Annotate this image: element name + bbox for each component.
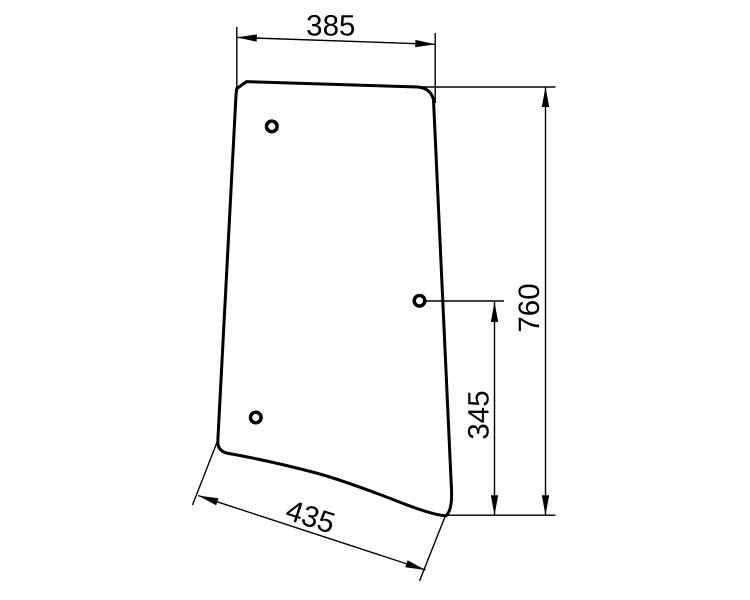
svg-text:345: 345 xyxy=(462,390,495,439)
svg-text:385: 385 xyxy=(306,10,355,43)
svg-text:435: 435 xyxy=(282,494,339,541)
svg-text:760: 760 xyxy=(513,283,546,332)
